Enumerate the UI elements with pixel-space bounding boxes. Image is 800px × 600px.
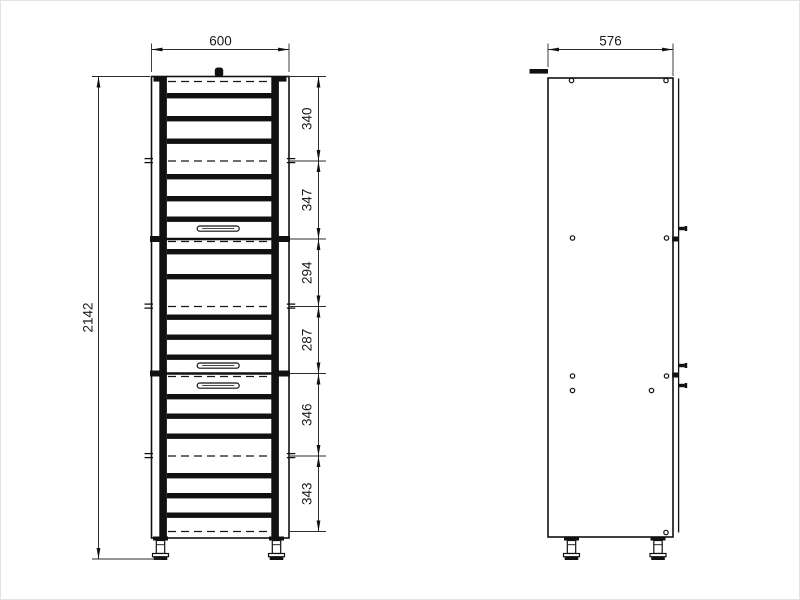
screw-hole	[569, 78, 573, 82]
dim-label-section-3: 287	[300, 329, 315, 352]
side-holes	[569, 78, 668, 534]
side-top-bracket	[530, 69, 549, 74]
slat	[167, 493, 272, 498]
drawer-handle	[197, 383, 239, 388]
slat	[167, 249, 272, 254]
front-cabinet-outline	[152, 77, 290, 539]
dimensions: 600 2142 576 340 347 294 287 346 343	[81, 34, 674, 560]
screw-hole	[649, 388, 653, 392]
side-cabinet-outline	[548, 78, 673, 537]
handle-profile	[679, 363, 688, 368]
screw-hole	[664, 530, 668, 534]
slat	[167, 355, 272, 360]
dim-label-front-width: 600	[209, 34, 232, 49]
boundary-right-block	[277, 371, 290, 377]
dim-label-section-5: 343	[300, 482, 315, 505]
front-slats	[167, 93, 272, 518]
hinge-block	[672, 373, 679, 378]
boundary-left-block	[150, 371, 163, 377]
cabinet-technical-drawing: 600 2142 576 340 347 294 287 346 343	[1, 1, 800, 600]
adjustable-foot	[269, 537, 285, 561]
slat	[167, 93, 272, 98]
boundary-left-block	[150, 236, 163, 242]
drawing-canvas: 600 2142 576 340 347 294 287 346 343	[0, 0, 800, 600]
slat	[167, 116, 272, 121]
slat	[167, 139, 272, 144]
side-view	[530, 69, 688, 560]
door-knob	[215, 68, 223, 78]
screw-hole	[664, 374, 668, 378]
front-view	[145, 68, 296, 561]
dim-label-overall-height: 2142	[81, 302, 96, 332]
slat	[167, 274, 272, 279]
side-feet	[564, 537, 667, 561]
slat	[167, 217, 272, 222]
screw-hole	[664, 236, 668, 240]
adjustable-foot	[564, 537, 580, 561]
front-feet	[153, 537, 285, 561]
adjustable-foot	[650, 537, 666, 561]
boundary-right-block	[277, 236, 290, 242]
front-dashed-lines	[168, 82, 271, 532]
slat	[167, 335, 272, 340]
slat	[167, 315, 272, 320]
front-top-left-bracket	[154, 77, 164, 82]
dim-label-section-0: 340	[300, 107, 315, 130]
handle-profile	[679, 226, 688, 231]
front-top-right-bracket	[277, 77, 287, 82]
slat	[167, 174, 272, 179]
handle-profile	[679, 383, 688, 388]
slat	[167, 196, 272, 201]
screw-hole	[664, 78, 668, 82]
hinge-block	[672, 237, 679, 242]
adjustable-foot	[153, 537, 169, 561]
screw-hole	[570, 236, 574, 240]
front-left-stile	[159, 77, 167, 539]
dim-label-section-2: 294	[300, 261, 315, 284]
dim-label-side-depth: 576	[599, 34, 622, 49]
side-handle-profiles	[679, 226, 688, 388]
dim-label-section-1: 347	[300, 189, 315, 212]
slat	[167, 394, 272, 399]
drawer-handle	[197, 363, 239, 368]
screw-hole	[570, 388, 574, 392]
slat	[167, 414, 272, 419]
slat	[167, 513, 272, 518]
slat	[167, 473, 272, 478]
dim-label-section-4: 346	[300, 403, 315, 426]
front-right-stile	[271, 77, 279, 539]
slat	[167, 434, 272, 439]
drawer-handle	[197, 226, 239, 231]
screw-hole	[570, 374, 574, 378]
